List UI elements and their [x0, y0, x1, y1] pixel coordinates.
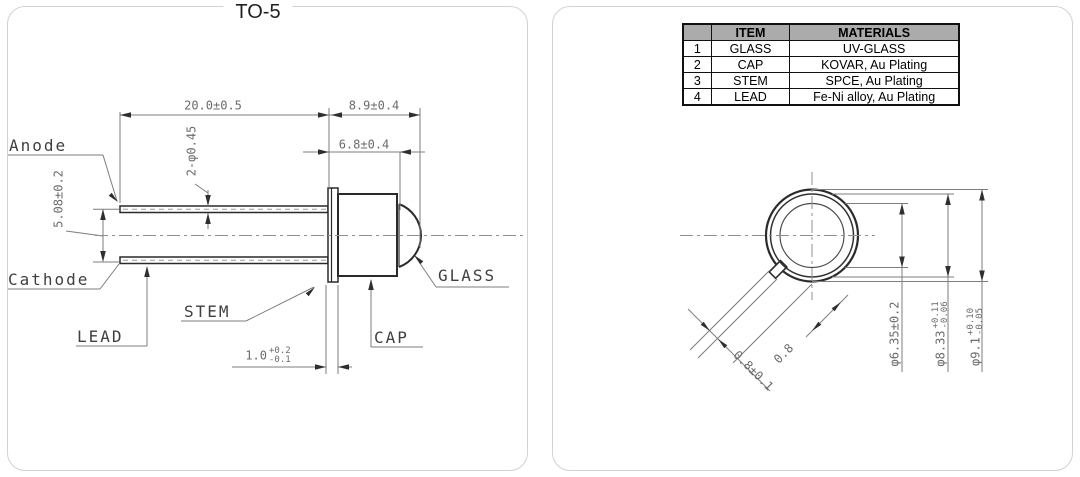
materials-table: ITEM MATERIALS 1 GLASS UV-GLASS 2 CAP KO… [682, 23, 960, 106]
dim-lead-length: 20.0±0.5 [184, 100, 242, 113]
index-tab [769, 261, 787, 279]
flange-diameter-minus: -0.05 [976, 308, 985, 335]
row-material: Fe-Ni alloy, Au Plating [790, 89, 959, 106]
stem-thickness-minus: -0.1 [269, 356, 291, 365]
row-item: CAP [711, 57, 790, 73]
label-glass: GLASS [438, 266, 496, 285]
label-lead: LEAD [77, 327, 124, 346]
row-material: SPCE, Au Plating [790, 73, 959, 89]
label-cathode: Cathode [8, 270, 89, 289]
dim-cap-diameter: φ8.33+0.11-0.06 [932, 301, 950, 366]
dim-stem-thickness: 1.0+0.2-0.1 [245, 347, 290, 365]
table-header-row: ITEM MATERIALS [683, 24, 959, 41]
label-anode: Anode [9, 136, 67, 155]
label-stem: STEM [184, 302, 231, 321]
package-title: TO-5 [223, 1, 292, 24]
dim-lead-pitch: 5.08±0.2 [53, 170, 66, 228]
row-material: KOVAR, Au Plating [790, 57, 959, 73]
row-item: GLASS [711, 41, 790, 57]
table-row: 1 GLASS UV-GLASS [683, 41, 959, 57]
cap-diameter-minus: -0.06 [941, 301, 950, 328]
table-row: 4 LEAD Fe-Ni alloy, Au Plating [683, 89, 959, 106]
table-row: 3 STEM SPCE, Au Plating [683, 73, 959, 89]
row-no: 3 [683, 73, 711, 89]
row-item: STEM [711, 73, 790, 89]
flange-diameter-value: φ9.1 [969, 337, 983, 366]
dim-window-diameter: φ6.35±0.2 [889, 301, 902, 366]
row-item: LEAD [711, 89, 790, 106]
dim-lead-diameter: 2-φ0.45 [186, 126, 199, 177]
stem-thickness-value: 1.0 [245, 349, 267, 363]
row-no: 2 [683, 57, 711, 73]
dim-total-head-length: 8.9±0.4 [349, 100, 400, 113]
dim-flange-diameter: φ9.1+0.10-0.05 [967, 308, 985, 366]
dim-cap-length: 6.8±0.4 [339, 139, 390, 152]
drawing-sheet: TO-5 [0, 0, 1080, 477]
label-cap: CAP [374, 328, 409, 347]
table-row: 2 CAP KOVAR, Au Plating [683, 57, 959, 73]
cap-diameter-value: φ8.33 [934, 330, 948, 366]
row-no: 4 [683, 89, 711, 106]
header-item: ITEM [711, 24, 790, 41]
row-material: UV-GLASS [790, 41, 959, 57]
header-materials: MATERIALS [790, 24, 959, 41]
row-no: 1 [683, 41, 711, 57]
header-no [683, 24, 711, 41]
